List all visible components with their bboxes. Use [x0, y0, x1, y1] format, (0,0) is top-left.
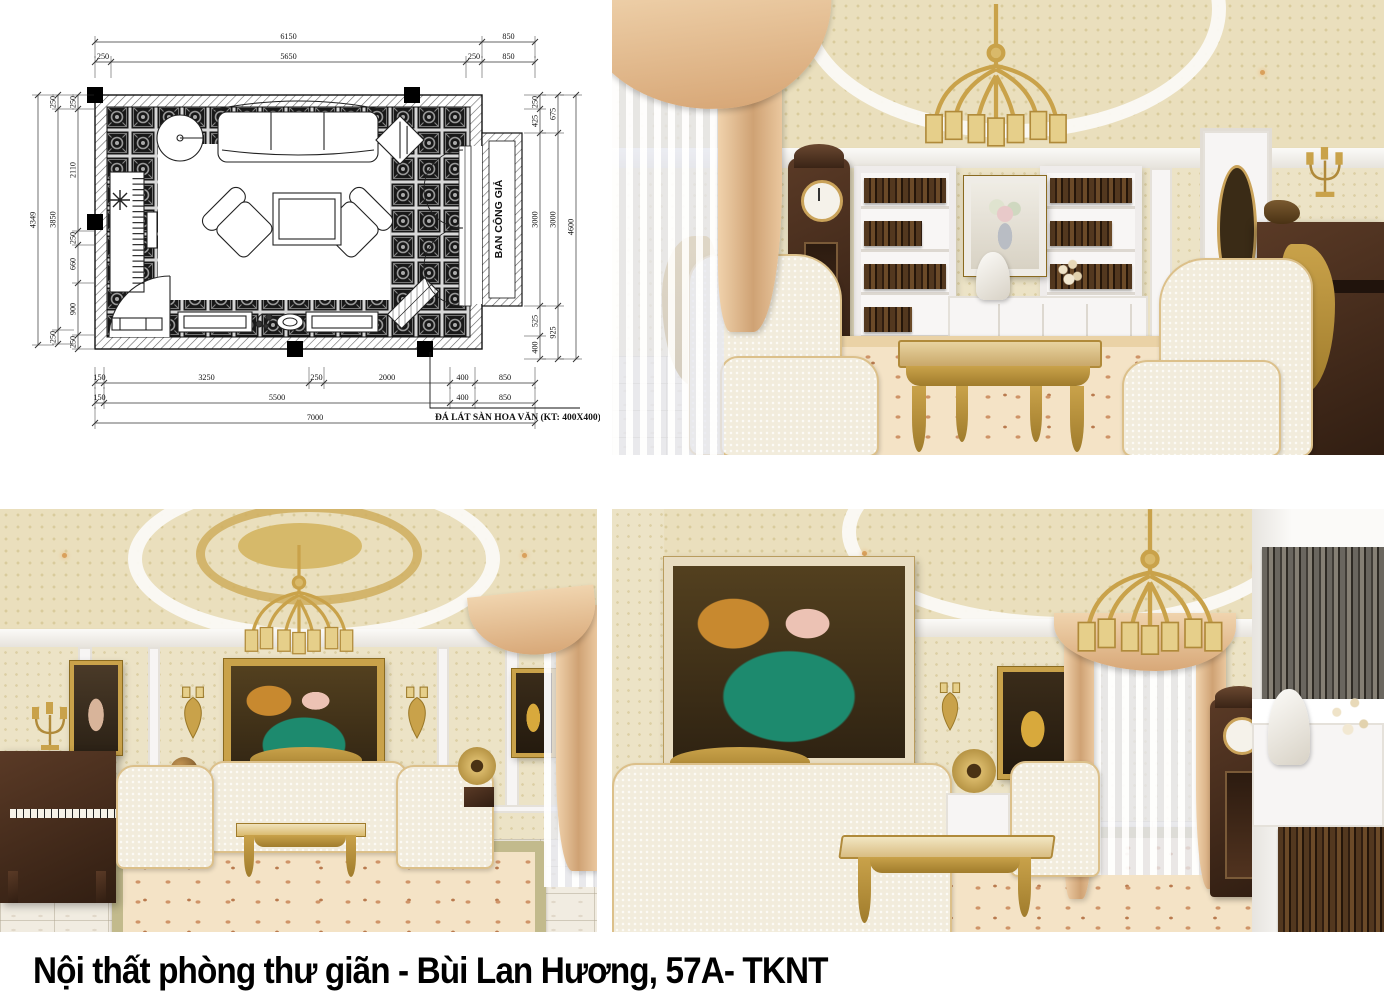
plan-candelabra [110, 190, 130, 210]
plan-dimension-label: 250 [97, 52, 109, 61]
table-apron [906, 366, 1090, 386]
table-leg [1030, 386, 1042, 442]
plan-dimension-label: 400 [531, 341, 540, 353]
table-top [838, 835, 1055, 859]
plan-dimension-label: 900 [69, 303, 78, 315]
plan-dimension-label: 250 [49, 96, 58, 108]
chandelier [224, 545, 374, 670]
books-row [864, 178, 946, 203]
plan-dimension-label: 675 [549, 108, 558, 120]
table-top [898, 340, 1102, 368]
plan-dimension-label: 4600 [567, 219, 576, 235]
plan-dimension-label: 425 [531, 115, 540, 127]
floor-plan: BAN CÔNG GIẢ ĐÁ LÁT SÀN HOA VĂN (KT: 400… [0, 0, 600, 460]
plan-dimension-label: 400 [456, 393, 468, 402]
table-leg [858, 857, 871, 923]
books-row [1050, 178, 1132, 203]
plan-dimension-label: 150 [93, 373, 105, 382]
plan-dimension-label: 250 [69, 232, 78, 244]
plan-dimension-label: 250 [69, 96, 78, 108]
table-apron [254, 835, 346, 847]
plan-dimension-label: 925 [549, 326, 558, 338]
flower-vase [1054, 252, 1084, 296]
plan-dimension-label: 250 [468, 52, 480, 61]
coffee-table [236, 823, 364, 879]
clock-crown [794, 144, 844, 168]
gramophone-horn [952, 749, 996, 793]
clock-hand [818, 188, 820, 201]
coffee-table [898, 340, 1098, 455]
plan-dimension-label: 850 [499, 393, 511, 402]
ceiling-light [522, 553, 527, 558]
plan-dimension-label: 4349 [29, 212, 38, 228]
gramophone-horn [458, 747, 496, 785]
piano-leg [96, 871, 106, 903]
candelabra [30, 701, 70, 751]
ceiling-light [862, 551, 867, 556]
table-leg [346, 835, 356, 877]
plan-dimension-label: 2110 [69, 162, 78, 178]
plan-dimension-label: 3250 [198, 373, 214, 382]
books-row-top [1262, 547, 1384, 699]
plan-dimension-label: 150 [93, 393, 105, 402]
plan-dimension-label: 525 [531, 315, 540, 327]
plan-dimension-label: 3850 [49, 211, 58, 227]
wall-painting-green-lady [664, 557, 914, 767]
wall-sconce [938, 681, 962, 731]
table-leg [244, 835, 254, 877]
armchair-left [116, 765, 214, 869]
piano-keys [10, 809, 116, 818]
plan-floor-note-text: ĐÁ LÁT SÀN HOA VĂN (KT: 400X400) [435, 411, 600, 423]
plan-dimension-label: 400 [456, 373, 468, 382]
caption-title: Nội thất phòng thư giãn - Bùi Lan Hương,… [33, 950, 828, 992]
plan-dimension-label: 7000 [307, 413, 323, 422]
chandelier [898, 4, 1094, 167]
books-row [1050, 221, 1112, 246]
render-lounge-side [612, 509, 1384, 932]
wall-sconce-right [404, 685, 430, 739]
chandelier [1050, 509, 1250, 676]
plan-dimension-label: 250 [49, 331, 58, 343]
plan-dimension-label: 250 [310, 373, 322, 382]
wall-sconce-left [180, 685, 206, 739]
sculpture [1264, 200, 1300, 224]
plan-dimension-label: 250 [531, 96, 540, 108]
chair-seat [1122, 360, 1281, 455]
plan-dimension-label: 3000 [549, 211, 558, 227]
plan-floor-note: ĐÁ LÁT SÀN HOA VĂN (KT: 400X400) [430, 352, 600, 423]
candelabra [1304, 146, 1346, 198]
plan-dimension-label: 850 [499, 373, 511, 382]
plan-dimension-label: 850 [502, 52, 514, 61]
plan-dimension-label: 3000 [531, 211, 540, 227]
plan-dimension-label: 2000 [379, 373, 395, 382]
plan-dimension-label: 6150 [280, 32, 296, 41]
table-leg [1018, 857, 1031, 917]
plan-dimension-label: 5650 [280, 52, 296, 61]
small-painting-left [70, 661, 122, 755]
plan-vase [277, 314, 303, 330]
presentation-board: BAN CÔNG GIẢ ĐÁ LÁT SÀN HOA VĂN (KT: 400… [0, 0, 1384, 1002]
table-leg [912, 386, 926, 452]
plan-coffee-table [273, 193, 341, 245]
render-reading-room [612, 0, 1384, 455]
piano-leg [8, 871, 18, 903]
gramophone-box [464, 787, 494, 807]
table-leg [1070, 386, 1084, 452]
gramophone [452, 747, 504, 811]
bust-sculpture [976, 252, 1010, 300]
piano [0, 751, 116, 903]
plan-dimension-label: 250 [69, 336, 78, 348]
plan-balcony-label: BAN CÔNG GIẢ [492, 179, 505, 258]
plan-round-table [157, 115, 203, 161]
plan-dimension-label: 660 [69, 258, 78, 270]
books-row-bottom [1278, 827, 1384, 932]
ceiling-light [1260, 70, 1265, 75]
plan-dimension-label: 850 [502, 32, 514, 41]
ceiling-light [62, 553, 67, 558]
clock-face [801, 180, 843, 222]
armchair-right [1120, 244, 1335, 455]
bookshelf-unit [1252, 509, 1384, 932]
flower-vase [1320, 681, 1376, 759]
render-lounge-front [0, 509, 597, 932]
table-leg [956, 386, 968, 442]
chair-seat [720, 356, 879, 455]
plan-dimension-label: 5500 [269, 393, 285, 402]
coffee-table [840, 835, 1050, 932]
table-apron [870, 857, 1020, 873]
